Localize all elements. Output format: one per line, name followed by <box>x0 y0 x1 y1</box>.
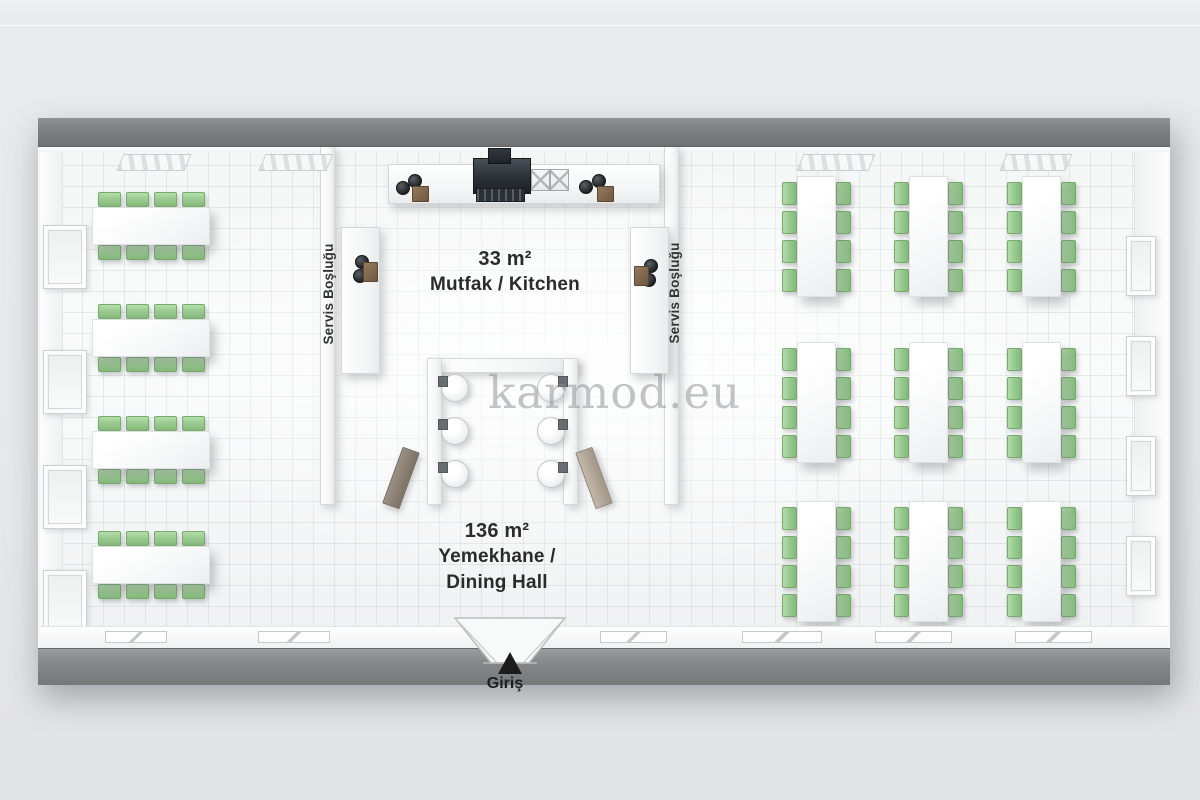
dining-table <box>797 501 836 622</box>
dining-table <box>92 546 210 584</box>
chair <box>1007 348 1022 371</box>
window-pane <box>1131 441 1151 491</box>
chair <box>894 594 909 617</box>
chair <box>894 536 909 559</box>
dining-table-group <box>894 342 961 461</box>
cutting-board-icon <box>412 186 429 202</box>
ceiling-vent-icon <box>1000 154 1073 171</box>
dining-table-group <box>1007 176 1074 295</box>
chair <box>1061 377 1076 400</box>
window <box>1126 536 1156 596</box>
top-exterior-wall <box>38 118 1170 147</box>
chair <box>948 269 963 292</box>
chair <box>1061 594 1076 617</box>
service-counter-right <box>630 227 669 374</box>
chair <box>836 565 851 588</box>
dining-table <box>1022 501 1061 622</box>
watermark: karmod.eu <box>488 366 741 419</box>
chair <box>98 357 121 372</box>
chair <box>1007 536 1022 559</box>
dining-name-text-1: Yemekhane / <box>417 544 577 570</box>
chair <box>126 357 149 372</box>
chair <box>98 416 121 431</box>
chair <box>1061 240 1076 263</box>
chair <box>782 565 797 588</box>
ceiling-vent-icon <box>797 154 876 171</box>
chair <box>182 245 205 260</box>
chair <box>182 304 205 319</box>
chair <box>782 348 797 371</box>
chair <box>182 531 205 546</box>
dining-table-group <box>894 501 961 620</box>
faucet-icon <box>558 462 568 473</box>
chair <box>782 240 797 263</box>
chair <box>1061 536 1076 559</box>
cafeteria-building: 33 m² Mutfak / Kitchen 136 m² Yemekhane … <box>38 118 1170 684</box>
ceiling-vent-icon <box>117 154 192 171</box>
chair <box>182 469 205 484</box>
sink-basin-icon <box>531 169 550 191</box>
chair <box>1007 240 1022 263</box>
chair <box>948 211 963 234</box>
dining-table <box>1022 176 1061 297</box>
chair <box>894 269 909 292</box>
dining-table-group <box>92 304 208 370</box>
dining-table <box>797 342 836 463</box>
stove-grill-icon <box>476 188 525 202</box>
chair <box>782 594 797 617</box>
chair <box>894 507 909 530</box>
chair <box>154 416 177 431</box>
window <box>600 631 667 643</box>
chair <box>1007 507 1022 530</box>
chair <box>894 377 909 400</box>
chair <box>1007 269 1022 292</box>
chair <box>894 182 909 205</box>
window-pane <box>48 470 82 524</box>
dining-table-group <box>92 192 208 258</box>
chair <box>782 269 797 292</box>
chair <box>98 304 121 319</box>
chair <box>182 584 205 599</box>
window <box>43 225 87 289</box>
chair <box>1061 182 1076 205</box>
service-counter-left <box>341 227 380 374</box>
chair <box>836 435 851 458</box>
chair <box>182 357 205 372</box>
service-gap-label-left: Servis Boşluğu <box>320 239 336 349</box>
chair <box>1007 377 1022 400</box>
dining-table <box>797 176 836 297</box>
chair <box>782 536 797 559</box>
kitchen-label: 33 m² Mutfak / Kitchen <box>430 246 580 298</box>
dining-table-group <box>92 531 208 597</box>
chair <box>948 594 963 617</box>
chair <box>782 211 797 234</box>
window <box>258 631 330 643</box>
chair <box>948 348 963 371</box>
chair <box>1007 182 1022 205</box>
chair <box>948 240 963 263</box>
bottom-exterior-wall <box>40 626 1168 649</box>
window-pane <box>1131 341 1151 391</box>
dining-table <box>1022 342 1061 463</box>
window <box>742 631 822 643</box>
window-pane <box>48 355 82 409</box>
chair <box>126 531 149 546</box>
dining-name-text-2: Dining Hall <box>417 570 577 596</box>
chair <box>1061 565 1076 588</box>
chair <box>126 304 149 319</box>
dining-area-text: 136 m² <box>417 518 577 544</box>
dining-table <box>909 176 948 297</box>
window-pane <box>48 230 82 284</box>
sink-basin-icon <box>550 169 569 191</box>
chair <box>154 304 177 319</box>
dining-table-group <box>782 176 849 295</box>
chair <box>98 245 121 260</box>
chair <box>836 182 851 205</box>
dining-table-group <box>1007 501 1074 620</box>
chair <box>1061 507 1076 530</box>
chair <box>894 240 909 263</box>
dining-table-group <box>92 416 208 482</box>
chair <box>836 269 851 292</box>
chair <box>948 182 963 205</box>
chair <box>154 357 177 372</box>
chair <box>98 584 121 599</box>
chair <box>836 507 851 530</box>
kitchen-counter <box>388 164 660 204</box>
window-pane <box>1131 241 1151 291</box>
chair <box>1061 269 1076 292</box>
chair <box>1061 211 1076 234</box>
chair <box>1061 348 1076 371</box>
chair <box>836 594 851 617</box>
dining-table-group <box>894 176 961 295</box>
chair <box>948 536 963 559</box>
faucet-icon <box>438 462 448 473</box>
background-divider <box>0 25 1200 26</box>
window <box>43 570 87 628</box>
dining-table <box>92 207 210 245</box>
cutting-board-icon <box>363 262 378 282</box>
chair <box>894 211 909 234</box>
ceiling-vent-icon <box>259 154 334 171</box>
window-pane <box>48 575 82 628</box>
chair <box>98 531 121 546</box>
bottom-exterior-fascia <box>38 648 1170 685</box>
chair <box>894 565 909 588</box>
chair <box>782 377 797 400</box>
chair <box>154 584 177 599</box>
cutting-board-icon <box>597 186 614 202</box>
chair <box>836 348 851 371</box>
chair <box>1007 211 1022 234</box>
floor-plan-scene: 33 m² Mutfak / Kitchen 136 m² Yemekhane … <box>0 0 1200 800</box>
dining-hall-label: 136 m² Yemekhane / Dining Hall <box>417 518 577 596</box>
window <box>1126 236 1156 296</box>
chair <box>154 245 177 260</box>
entrance-label: Giriş <box>440 675 570 693</box>
dining-table-group <box>782 501 849 620</box>
pot-icon <box>579 180 593 194</box>
chair <box>836 240 851 263</box>
chair <box>98 192 121 207</box>
hood-chimney-icon <box>488 148 511 164</box>
chair <box>782 406 797 429</box>
faucet-icon <box>558 419 568 430</box>
chair <box>154 192 177 207</box>
dining-table <box>909 342 948 463</box>
entrance-canopy-icon <box>453 616 567 678</box>
faucet-icon <box>438 376 448 387</box>
cutting-board-icon <box>634 266 649 286</box>
window <box>105 631 167 643</box>
chair <box>948 507 963 530</box>
service-gap-label-right: Servis Boşluğu <box>666 238 682 348</box>
chair <box>836 377 851 400</box>
chair <box>98 469 121 484</box>
chair <box>894 435 909 458</box>
chair <box>154 531 177 546</box>
chair <box>948 565 963 588</box>
chair <box>1007 594 1022 617</box>
chair <box>126 416 149 431</box>
chair <box>182 192 205 207</box>
dining-table-group <box>782 342 849 461</box>
chair <box>948 435 963 458</box>
chair <box>836 211 851 234</box>
chair <box>782 182 797 205</box>
chair <box>948 377 963 400</box>
chair <box>836 536 851 559</box>
kitchen-name-text: Mutfak / Kitchen <box>430 272 580 298</box>
dining-table <box>92 431 210 469</box>
window <box>43 350 87 414</box>
chair <box>126 469 149 484</box>
chair <box>1007 435 1022 458</box>
chair <box>1007 565 1022 588</box>
chair <box>782 507 797 530</box>
chair <box>836 406 851 429</box>
kitchen-area-text: 33 m² <box>430 246 580 272</box>
chair <box>154 469 177 484</box>
chair <box>1007 406 1022 429</box>
chair <box>782 435 797 458</box>
chair <box>894 406 909 429</box>
window <box>43 465 87 529</box>
chair <box>182 416 205 431</box>
chair <box>126 192 149 207</box>
window <box>875 631 952 643</box>
dining-table <box>92 319 210 357</box>
chair <box>126 245 149 260</box>
faucet-icon <box>438 419 448 430</box>
chair <box>1061 406 1076 429</box>
window <box>1126 336 1156 396</box>
window <box>1126 436 1156 496</box>
building-interior: 33 m² Mutfak / Kitchen 136 m² Yemekhane … <box>40 146 1168 628</box>
chair <box>126 584 149 599</box>
dining-table <box>909 501 948 622</box>
window-pane <box>1131 541 1151 591</box>
window <box>1015 631 1092 643</box>
chair <box>894 348 909 371</box>
chair <box>1061 435 1076 458</box>
chair <box>948 406 963 429</box>
dining-table-group <box>1007 342 1074 461</box>
